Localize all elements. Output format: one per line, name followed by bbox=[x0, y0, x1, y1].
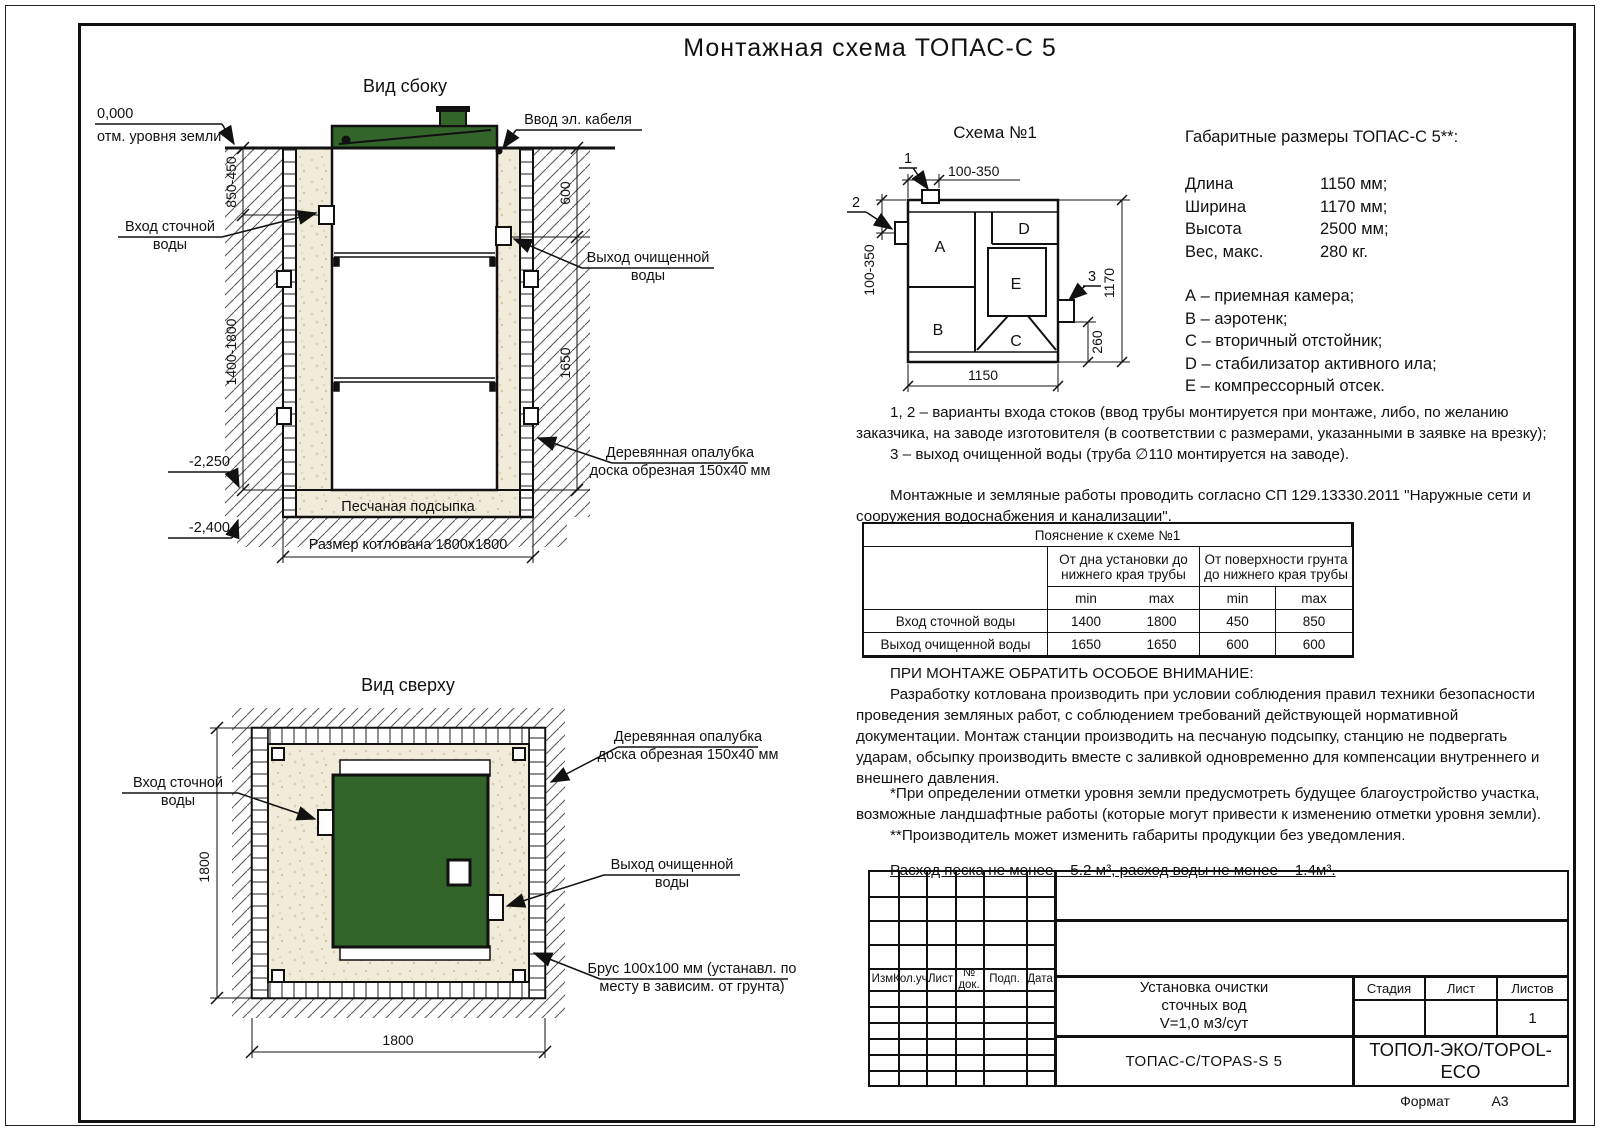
table-subhead: min bbox=[1048, 587, 1124, 610]
title-block: Изм. Кол.уч. Лист № док. Подп. Дата Уста… bbox=[868, 870, 1569, 1087]
pit-size-label: Размер котлована 1800х1800 bbox=[309, 537, 508, 553]
dim-1170: 1170 bbox=[1101, 268, 1117, 298]
svg-text:-2,400: -2,400 bbox=[189, 520, 230, 536]
attention-block: ПРИ МОНТАЖЕ ОБРАТИТЬ ОСОБОЕ ВНИМАНИЕ: Ра… bbox=[856, 663, 1556, 789]
rev-col-list: Лист bbox=[926, 968, 955, 990]
port1-label: 1 bbox=[904, 151, 912, 167]
specs-heading: Габаритные размеры ТОПАС-С 5**: bbox=[1185, 128, 1575, 147]
svg-text:0,000: 0,000 bbox=[97, 106, 133, 122]
format-value: А3 bbox=[1465, 1093, 1535, 1109]
explanation-table: Пояснение к схеме №1 От дна установки до… bbox=[862, 522, 1354, 658]
table-cell: 1400 bbox=[1048, 610, 1124, 633]
table-title: Пояснение к схеме №1 bbox=[864, 524, 1352, 547]
dim-1150: 1150 bbox=[968, 367, 998, 383]
table-cell: 1650 bbox=[1124, 633, 1200, 656]
spec-row: Длина1150 мм; bbox=[1185, 173, 1575, 196]
schema1-port1 bbox=[922, 190, 939, 203]
compartment-e: E bbox=[1011, 276, 1022, 293]
sheet-header: Лист bbox=[1426, 977, 1496, 999]
side-view-drawing: Вид сбоку bbox=[80, 55, 820, 615]
lid-hinge-dot bbox=[342, 136, 351, 145]
formwork-callout-top: Деревянная опалубка доска обрезная 150х4… bbox=[551, 729, 778, 782]
dim-600: 600 bbox=[557, 181, 573, 205]
outlet-port bbox=[496, 227, 511, 245]
dim-1650: 1650 bbox=[557, 347, 573, 378]
stage-header: Стадия bbox=[1354, 977, 1424, 999]
tank-body bbox=[332, 148, 497, 490]
format-label: Формат bbox=[1380, 1093, 1470, 1109]
beam-callout-top: Брус 100х100 мм (устанавл. по месту в за… bbox=[534, 953, 797, 995]
legend-item: А – приемная камера; bbox=[1185, 285, 1575, 308]
table-cell: 450 bbox=[1200, 610, 1276, 633]
legend-item: D – стабилизатор активного ила; bbox=[1185, 353, 1575, 376]
svg-text:месту в зависим. от грунта): месту в зависим. от грунта) bbox=[599, 979, 784, 995]
specs-rows: Длина1150 мм; Ширина1170 мм; Высота2500 … bbox=[1185, 173, 1575, 263]
svg-text:Ввод эл. кабеля: Ввод эл. кабеля bbox=[524, 112, 632, 128]
notes-block: 1, 2 – варианты входа стоков (ввод трубы… bbox=[856, 402, 1548, 527]
svg-text:воды: воды bbox=[161, 793, 195, 809]
table-cell: 1650 bbox=[1048, 633, 1124, 656]
svg-text:Выход очищенной: Выход очищенной bbox=[587, 250, 710, 266]
inlet-port-top bbox=[318, 810, 333, 835]
inlet-port bbox=[319, 206, 334, 224]
vent-hatch-top bbox=[448, 860, 470, 885]
table-cell: 1800 bbox=[1124, 610, 1200, 633]
note-sp: Монтажные и земляные работы проводить со… bbox=[856, 485, 1548, 527]
rev-col-ndok: № док. bbox=[955, 968, 983, 990]
dim-top-100-350: 100-350 bbox=[948, 163, 1000, 179]
dim-850-450: 850-450 bbox=[223, 156, 239, 208]
cable-entry-callout: Ввод эл. кабеля bbox=[503, 112, 642, 148]
note-variants: 1, 2 – варианты входа стоков (ввод трубы… bbox=[856, 402, 1548, 444]
table-col-group-2: От поверхности грунта до нижнего края тр… bbox=[1200, 547, 1352, 587]
footnote-2: **Производитель может изменить габариты … bbox=[856, 825, 1556, 846]
compartment-b: B bbox=[933, 322, 944, 339]
top-view-title: Вид сверху bbox=[361, 675, 455, 695]
dim-1800-v: 1800 bbox=[196, 851, 212, 882]
table-cell: 600 bbox=[1276, 633, 1352, 656]
svg-text:воды: воды bbox=[631, 268, 665, 284]
table-cell: 600 bbox=[1200, 633, 1276, 656]
schema1-drawing: Схема №1 A B D E C 1 2 bbox=[840, 110, 1190, 410]
schema1-port3 bbox=[1058, 300, 1074, 322]
svg-text:Брус 100х100 мм (устанавл. по: Брус 100х100 мм (устанавл. по bbox=[588, 961, 797, 977]
rev-col-podp: Подп. bbox=[983, 968, 1026, 990]
dim-1800-h: 1800 bbox=[382, 1032, 413, 1048]
svg-text:Выход очищенной: Выход очищенной bbox=[611, 857, 734, 873]
footnote-1: *При определении отметки уровня земли пр… bbox=[856, 783, 1556, 825]
level-2400-mark: -2,400 bbox=[168, 520, 238, 538]
company-cell: ТОПОЛ-ЭКО/TOPOL-ECO bbox=[1354, 1037, 1567, 1085]
vent-cap bbox=[440, 111, 466, 126]
note-outlet: 3 – выход очищенной воды (труба ∅110 мон… bbox=[856, 444, 1548, 465]
compartment-d: D bbox=[1018, 221, 1030, 238]
svg-text:доска обрезная 150х40 мм: доска обрезная 150х40 мм bbox=[598, 747, 779, 763]
outlet-port-top bbox=[488, 895, 503, 920]
sheets-value: 1 bbox=[1498, 1001, 1567, 1035]
table-row-name: Вход сточной воды bbox=[864, 610, 1048, 633]
legend-item: Е – компрессорный отсек. bbox=[1185, 375, 1575, 398]
attention-heading: ПРИ МОНТАЖЕ ОБРАТИТЬ ОСОБОЕ ВНИМАНИЕ: bbox=[856, 663, 1556, 684]
schema1-port2 bbox=[895, 222, 908, 244]
svg-text:воды: воды bbox=[655, 875, 689, 891]
rev-col-koluch: Кол.уч. bbox=[898, 968, 926, 990]
svg-text:воды: воды bbox=[153, 237, 187, 253]
table-subhead: max bbox=[1124, 587, 1200, 610]
dim-1400-1800: 1400-1800 bbox=[223, 318, 239, 385]
side-view-title: Вид сбоку bbox=[363, 76, 447, 96]
spec-row: Высота2500 мм; bbox=[1185, 218, 1575, 241]
compartment-a: A bbox=[935, 239, 946, 256]
model-cell: ТОПАС-С/TOPAS-S 5 bbox=[1056, 1037, 1352, 1085]
rev-col-data: Дата bbox=[1026, 968, 1054, 990]
table-subhead: max bbox=[1276, 587, 1352, 610]
dim-260: 260 bbox=[1089, 330, 1105, 354]
svg-text:Деревянная опалубка: Деревянная опалубка bbox=[614, 729, 763, 745]
svg-text:Деревянная опалубка: Деревянная опалубка bbox=[606, 445, 755, 461]
ground-note-label: отм. уровня земли* bbox=[97, 129, 227, 145]
table-corner-cell bbox=[864, 547, 1048, 610]
svg-text:-2,250: -2,250 bbox=[189, 454, 230, 470]
svg-text:Вход сточной: Вход сточной bbox=[133, 775, 223, 791]
legend-item: В – аэротенк; bbox=[1185, 308, 1575, 331]
schema1-title: Схема №1 bbox=[953, 123, 1037, 142]
spec-row: Вес, макс.280 кг. bbox=[1185, 241, 1575, 264]
table-row-name: Выход очищенной воды bbox=[864, 633, 1048, 656]
sand-bed-label: Песчаная подсыпка bbox=[341, 499, 475, 515]
svg-text:доска обрезная 150х40 мм: доска обрезная 150х40 мм bbox=[590, 463, 771, 479]
legend-item: С – вторичный отстойник; bbox=[1185, 330, 1575, 353]
doc-title-cell: Установка очистки сточных вод V=1,0 м3/с… bbox=[1056, 977, 1352, 1035]
top-view-drawing: Вид сверху bbox=[120, 655, 820, 1075]
spec-row: Ширина1170 мм; bbox=[1185, 196, 1575, 219]
table-subhead: min bbox=[1200, 587, 1276, 610]
table-cell: 850 bbox=[1276, 610, 1352, 633]
zero-level-mark: 0,000 отм. уровня земли* bbox=[95, 106, 234, 145]
port2-label: 2 bbox=[852, 195, 860, 211]
dim-left-100-350: 100-350 bbox=[861, 244, 877, 296]
drawing-sheet: Монтажная схема ТОПАС-С 5 Вид сбоку bbox=[0, 0, 1600, 1131]
port3-label: 3 bbox=[1088, 269, 1096, 285]
footnotes-block: *При определении отметки уровня земли пр… bbox=[856, 783, 1556, 879]
specs-block: Габаритные размеры ТОПАС-С 5**: Длина115… bbox=[1185, 128, 1575, 398]
specs-legend: А – приемная камера; В – аэротенк; С – в… bbox=[1185, 285, 1575, 398]
attention-body: Разработку котлована производить при усл… bbox=[856, 684, 1556, 789]
sheets-header: Листов bbox=[1498, 977, 1567, 999]
compartment-c: C bbox=[1010, 333, 1022, 350]
svg-text:Вход сточной: Вход сточной bbox=[125, 219, 215, 235]
table-col-group-1: От дна установки до нижнего края трубы bbox=[1048, 547, 1200, 587]
